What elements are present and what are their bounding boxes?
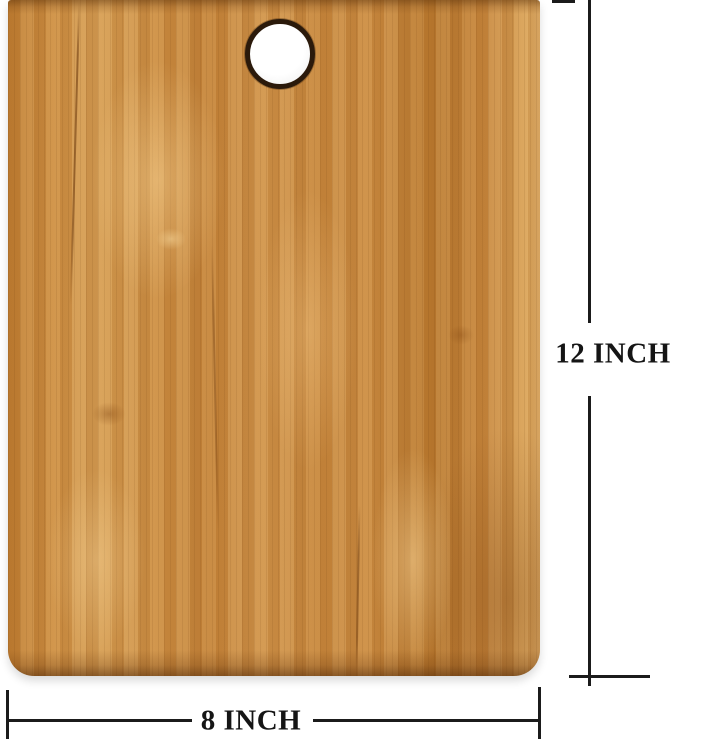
wood-knot <box>92 402 126 426</box>
width-dimension-left-tick <box>6 690 9 739</box>
wood-knot <box>448 325 474 345</box>
wood-grain-line <box>70 0 81 305</box>
width-dimension-right-tick <box>538 687 541 739</box>
wood-grain-line <box>356 505 361 670</box>
width-dimension-line-left <box>6 719 192 722</box>
wood-knot <box>156 228 186 250</box>
height-dimension-top-cap <box>552 0 575 3</box>
height-dimension-line-lower <box>588 396 591 686</box>
product-photo: 12 INCH 8 INCH <box>0 0 706 739</box>
wood-grain-line <box>211 245 219 530</box>
width-dimension-line-right <box>313 719 540 722</box>
height-dimension-line-upper <box>588 0 591 323</box>
height-dimension-label: 12 INCH <box>555 338 670 371</box>
height-dimension-bottom-cap <box>569 675 650 678</box>
hanging-hole <box>245 19 315 89</box>
width-dimension-label: 8 INCH <box>201 705 301 738</box>
cutting-board <box>8 0 540 676</box>
